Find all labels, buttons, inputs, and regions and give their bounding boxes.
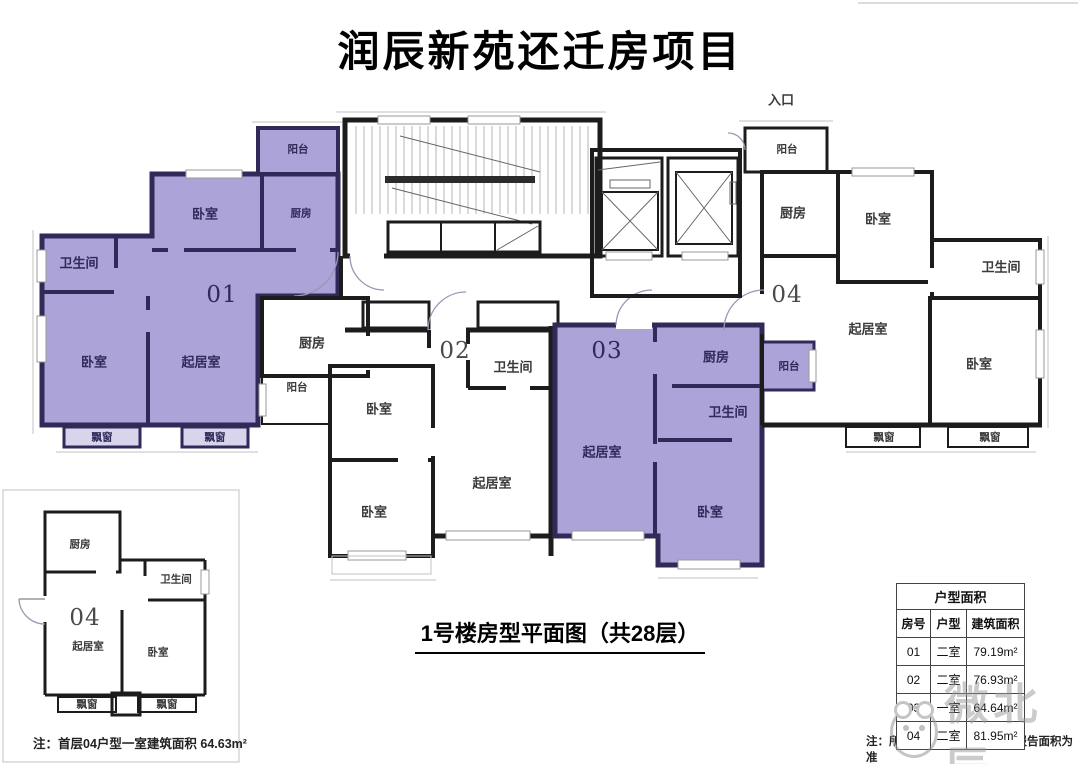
room-label-living: 起居室 <box>181 352 220 371</box>
cell-room-no: 01 <box>897 638 931 665</box>
room-label-living: 起居室 <box>472 473 511 492</box>
table-row: 03 一室 64.64m² <box>897 694 1024 722</box>
table-row: 01 二室 79.19m² <box>897 638 1024 666</box>
room-label-bedroom: 卧室 <box>966 354 992 373</box>
mini-unit-number-04: 04 <box>69 605 100 631</box>
floor-plan-page: 润辰新苑还迁房项目 <box>0 0 1080 764</box>
cell-type: 二室 <box>931 722 967 749</box>
cell-area: 79.19m² <box>967 638 1024 665</box>
cell-room-no: 04 <box>897 722 931 749</box>
room-label-bedroom: 卧室 <box>697 502 723 521</box>
room-label-living: 起居室 <box>582 442 621 461</box>
unit-number-02: 02 <box>439 338 470 364</box>
room-label-bedroom: 卧室 <box>192 204 218 223</box>
room-label-kitchen: 厨房 <box>780 203 806 222</box>
table-header-row: 房号 户型 建筑面积 <box>897 610 1024 638</box>
room-label-bathroom: 卫生间 <box>981 257 1020 276</box>
table-row: 04 二室 81.95m² <box>897 722 1024 749</box>
room-label-kitchen: 厨房 <box>703 347 729 366</box>
room-label-bedroom: 卧室 <box>865 209 891 228</box>
unit-area-table: 户型面积 房号 户型 建筑面积 01 二室 79.19m² 02 二室 76.9… <box>896 583 1025 750</box>
room-label-balcony: 阳台 <box>779 359 800 374</box>
room-label-bathroom: 卫生间 <box>59 253 98 272</box>
room-label-balcony: 阳台 <box>288 142 309 157</box>
elevator-left <box>596 158 662 256</box>
col-header-type: 户型 <box>931 610 967 637</box>
entrance-label: 入口 <box>768 90 794 109</box>
cell-area: 76.93m² <box>967 666 1024 693</box>
room-label-kitchen: 厨房 <box>70 537 91 552</box>
room-label-baywindow: 飘窗 <box>92 430 113 445</box>
room-label-baywindow: 飘窗 <box>205 430 226 445</box>
room-label-baywindow: 飘窗 <box>874 430 895 445</box>
cell-type: 二室 <box>931 666 967 693</box>
room-label-balcony: 阳台 <box>287 380 308 395</box>
stair-elevator-core <box>341 116 740 298</box>
room-label-bathroom: 卫生间 <box>708 402 747 421</box>
room-label-kitchen: 厨房 <box>291 206 312 221</box>
room-label-bedroom: 卧室 <box>81 352 107 371</box>
room-label-living: 起居室 <box>72 639 104 654</box>
unit-number-01: 01 <box>206 282 237 308</box>
room-label-bedroom: 卧室 <box>366 399 392 418</box>
section-label: 1号楼房型平面图（共28层） <box>415 616 705 654</box>
room-label-kitchen: 厨房 <box>299 333 325 352</box>
unit-number-04: 04 <box>771 282 802 308</box>
col-header-room-no: 房号 <box>897 610 931 637</box>
cell-type: 二室 <box>931 638 967 665</box>
unit-03-area <box>555 290 816 569</box>
unit-01-area <box>37 128 338 447</box>
room-label-bathroom: 卫生间 <box>493 357 532 376</box>
mini-plan-note: 注：首层04户型一室建筑面积 64.63m² <box>33 733 247 752</box>
cell-room-no: 02 <box>897 666 931 693</box>
room-label-baywindow: 飘窗 <box>77 697 98 712</box>
unit-number-03: 03 <box>591 338 622 364</box>
table-row: 02 二室 76.93m² <box>897 666 1024 694</box>
table-title: 户型面积 <box>897 584 1024 610</box>
col-header-area: 建筑面积 <box>967 610 1024 637</box>
room-label-living: 起居室 <box>848 319 887 338</box>
mini-plan-drawing <box>3 490 239 762</box>
cell-area: 81.95m² <box>967 722 1024 749</box>
room-label-baywindow: 飘窗 <box>980 430 1001 445</box>
cell-area: 64.64m² <box>967 694 1024 721</box>
room-label-bedroom: 卧室 <box>148 645 169 660</box>
cell-type: 一室 <box>931 694 967 721</box>
room-label-baywindow: 飘窗 <box>157 697 178 712</box>
room-label-balcony: 阳台 <box>777 142 798 157</box>
cell-room-no: 03 <box>897 694 931 721</box>
room-label-bedroom: 卧室 <box>361 502 387 521</box>
room-label-bathroom: 卫生间 <box>160 572 192 587</box>
